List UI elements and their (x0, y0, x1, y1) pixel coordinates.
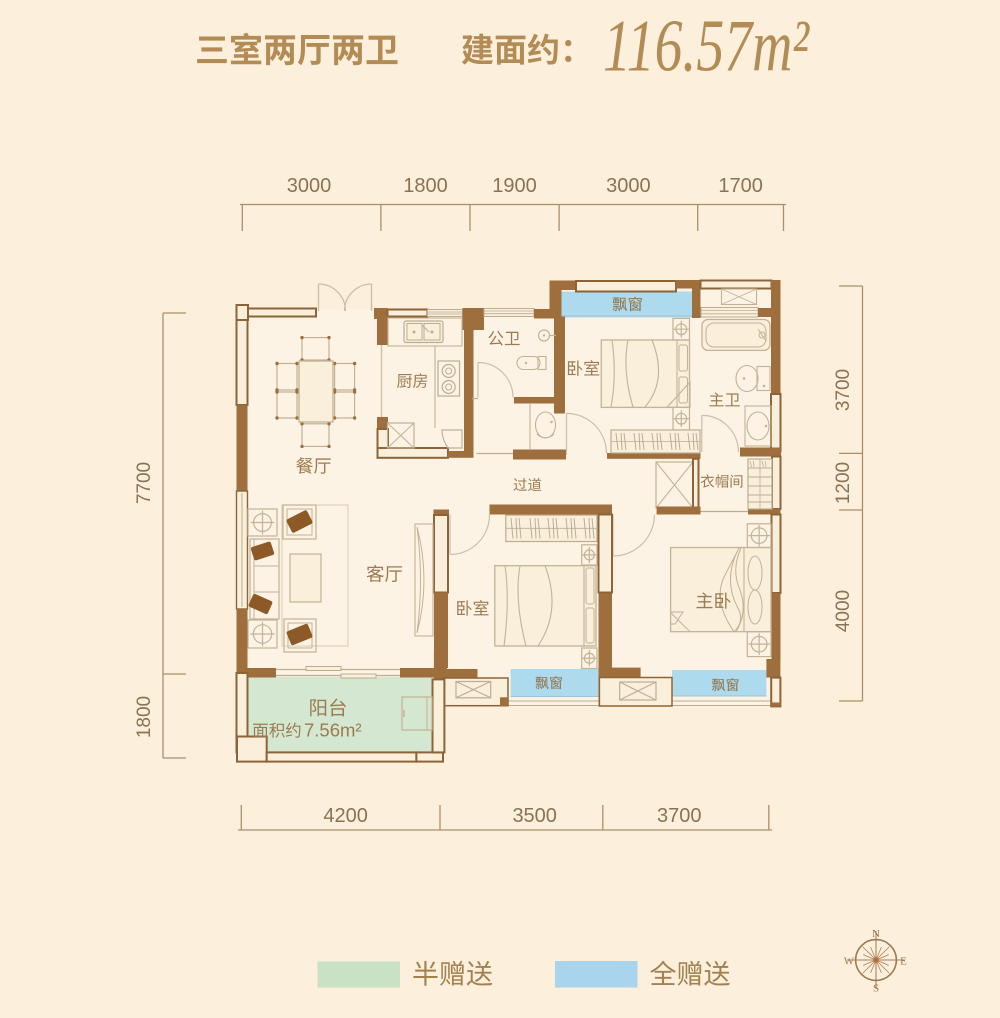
svg-text:N: N (872, 928, 880, 940)
svg-text:1700: 1700 (718, 175, 763, 197)
svg-text:1800: 1800 (403, 175, 448, 197)
svg-text:7700: 7700 (134, 462, 155, 504)
svg-text:4200: 4200 (323, 805, 368, 827)
svg-text:3000: 3000 (606, 175, 651, 197)
svg-text:1900: 1900 (492, 175, 537, 197)
svg-text:W: W (844, 956, 855, 968)
svg-text:3700: 3700 (657, 805, 702, 827)
svg-text:1800: 1800 (134, 696, 155, 738)
svg-text:4000: 4000 (833, 590, 854, 632)
svg-text:7.56m²: 7.56m² (304, 720, 362, 741)
svg-text:116.57m²: 116.57m² (603, 6, 810, 88)
svg-text:S: S (873, 983, 879, 995)
svg-text:3500: 3500 (512, 805, 557, 827)
svg-text:3700: 3700 (833, 369, 854, 411)
svg-text:1200: 1200 (833, 462, 854, 504)
svg-text:E: E (900, 956, 907, 968)
svg-text:3000: 3000 (287, 175, 332, 197)
